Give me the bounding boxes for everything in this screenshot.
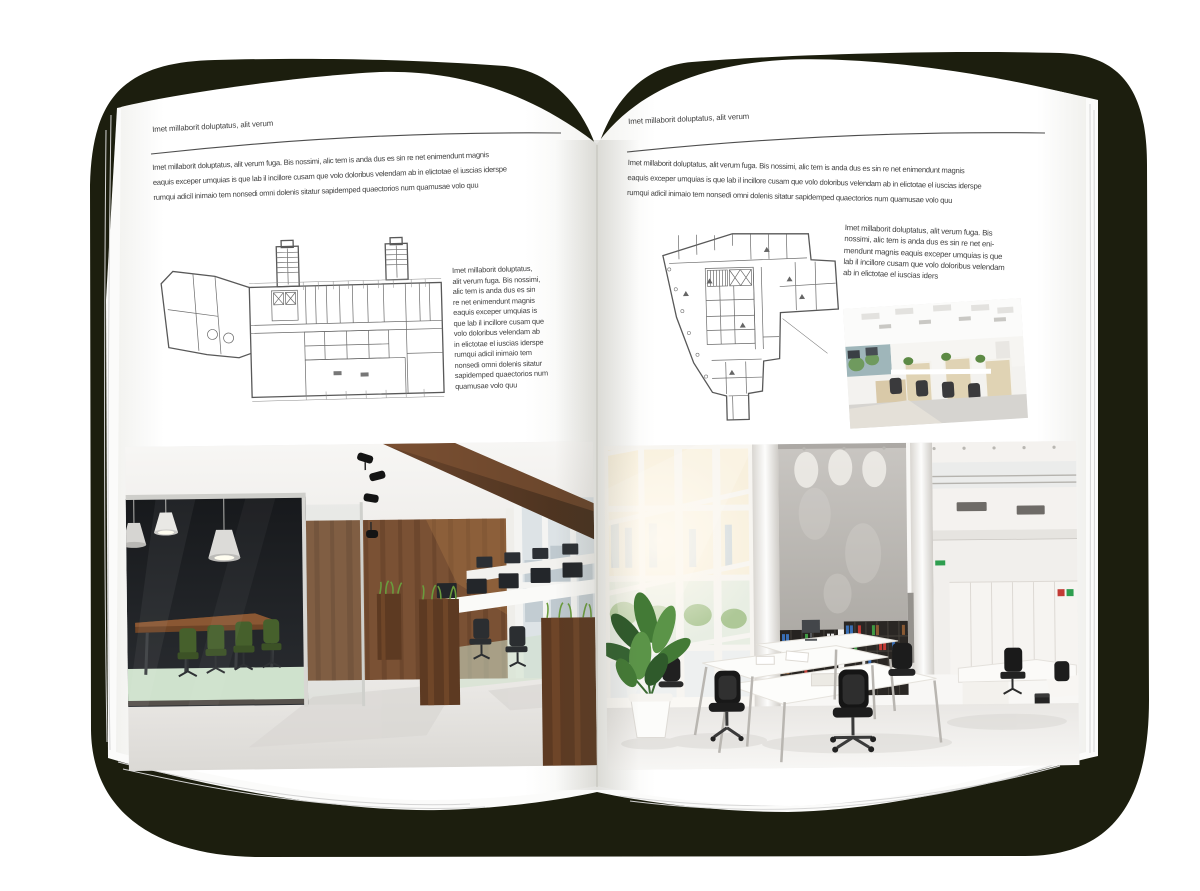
right-title-rule — [626, 127, 1048, 155]
right-office-photo — [604, 441, 1079, 770]
right-office-photo-art — [604, 441, 1079, 770]
concrete-wall — [778, 443, 908, 630]
left-floor-plan — [152, 232, 449, 416]
mezzanine — [932, 441, 1077, 541]
magazine-spread-mockup: Imet millaborit doluptatus, alit verum I… — [0, 0, 1200, 891]
exit-sign-2 — [935, 560, 945, 565]
left-office-photo — [125, 441, 597, 771]
plan-symbols — [682, 246, 807, 376]
meeting-room — [125, 493, 308, 709]
first-aid-sign — [1058, 589, 1065, 596]
small-office-photo-art — [843, 298, 1028, 429]
left-office-photo-art — [125, 441, 597, 771]
exit-sign — [1067, 589, 1074, 596]
right-floor-plan — [648, 217, 849, 428]
small-office-photo — [843, 298, 1028, 429]
front-glass-panel — [306, 502, 365, 707]
left-caption-paragraph: Imet millaborit doluptatus,alit verum fu… — [452, 263, 579, 392]
right-caption-paragraph: Imet millaborit doluptatus, alit verum f… — [843, 222, 1047, 286]
